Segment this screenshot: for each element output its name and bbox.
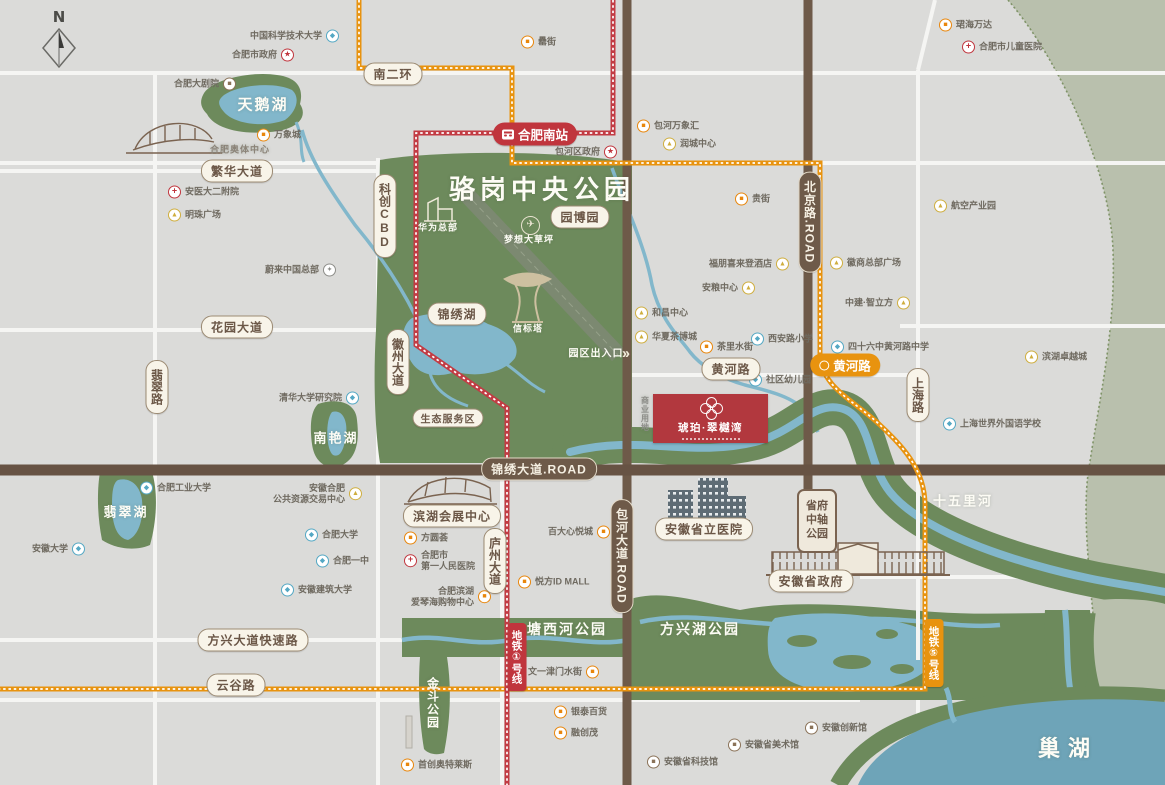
gov-icon: ★ xyxy=(604,146,617,159)
poi-label: 融创茂 xyxy=(571,728,598,739)
poi-marker: ▲徽商总部广场 xyxy=(830,257,901,270)
road-label-pill: 科创CBD xyxy=(374,174,397,258)
poi-label: 万象城 xyxy=(274,130,301,141)
culture-icon: ■ xyxy=(805,722,818,735)
poi-label: 银泰百货 xyxy=(571,707,607,718)
area-label: 十五里河 xyxy=(933,491,993,510)
poi-label: 合肥大学 xyxy=(322,530,358,541)
airplane-icon xyxy=(521,216,540,235)
metro-badge: 黄河路 xyxy=(810,354,880,377)
poi-label: 安粮中心 xyxy=(702,283,738,294)
mall-icon: ■ xyxy=(257,129,270,142)
poi-marker: 文一津门水街■ xyxy=(528,666,599,679)
poi-marker: 中建·智立方▲ xyxy=(845,297,910,310)
biz-icon: ▲ xyxy=(168,209,181,222)
road-label-pill: 徽州大道 xyxy=(387,329,410,395)
compass-n-label: N xyxy=(34,8,84,26)
poi-label: 清华大学研究院 xyxy=(279,393,342,404)
road-label-pill: 上海路 xyxy=(907,368,930,422)
school-icon: ◆ xyxy=(326,30,339,43)
poi-label: 上海世界外国语学校 xyxy=(960,419,1041,430)
poi-marker: ▲华夏茶博城 xyxy=(635,331,697,344)
poi-marker: ◆上海世界外国语学校 xyxy=(943,418,1041,431)
poi-marker: ■安徽省美术馆 xyxy=(728,739,799,752)
poi-label: 润城中心 xyxy=(680,139,716,150)
gate-chevron-icon xyxy=(622,345,628,362)
chaohu-lake xyxy=(852,699,1165,785)
mall-icon: ■ xyxy=(700,341,713,354)
poi-label: 安徽省美术馆 xyxy=(745,740,799,751)
poi-marker: ◆合肥大学 xyxy=(305,529,358,542)
mall-icon: ■ xyxy=(939,19,952,32)
poi-marker: ▲航空产业园 xyxy=(934,200,996,213)
poi-label: 合肥工业大学 xyxy=(157,483,211,494)
gov-icon: ★ xyxy=(281,49,294,62)
poi-marker: ▲滨湖卓越城 xyxy=(1025,351,1087,364)
poi-label: 和昌中心 xyxy=(652,308,688,319)
area-label: 方兴湖公园 xyxy=(660,619,740,639)
poi-marker: ■安徽省科技馆 xyxy=(647,756,718,769)
poi-label: 文一津门水街 xyxy=(528,667,582,678)
road-label-pill: 黄河路 xyxy=(701,358,760,381)
compass-rose-icon xyxy=(37,26,81,70)
school-icon: ◆ xyxy=(72,543,85,556)
project-tagline-rule xyxy=(682,438,740,440)
poi-label: 百大心悦城 xyxy=(548,527,593,538)
road-label-pill: 园博园 xyxy=(550,206,609,229)
poi-label: 罍街 xyxy=(538,37,556,48)
biz-icon: ▲ xyxy=(349,488,362,501)
river xyxy=(612,168,818,432)
poi-label: 蔚来中国总部 xyxy=(265,265,319,276)
provincial-hospital-sketch xyxy=(663,478,750,521)
school-icon: ◆ xyxy=(305,529,318,542)
poi-marker: ▲润城中心 xyxy=(663,138,716,151)
poi-marker: 蔚来中国总部✦ xyxy=(265,264,336,277)
road-label-pill: 包河大道.ROAD xyxy=(611,499,634,613)
olympic-center-sketch xyxy=(126,123,222,153)
poi-marker: ◆合肥工业大学 xyxy=(140,482,211,495)
road-label-pill: 锦绣湖 xyxy=(427,303,486,326)
mall-icon: ■ xyxy=(597,526,610,539)
poi-marker: ■方圆荟 xyxy=(404,532,448,545)
area-label: 园区出入口 xyxy=(569,345,624,360)
biz-icon: ▲ xyxy=(897,297,910,310)
biz-icon: ▲ xyxy=(934,200,947,213)
poi-marker: ■茶里水街 xyxy=(700,341,753,354)
area-label: 合肥奥体中心 xyxy=(210,143,270,156)
poi-label: 安医大二附院 xyxy=(185,187,239,198)
road-label-pill: 生态服务区 xyxy=(413,409,484,428)
biz-icon: ▲ xyxy=(635,307,648,320)
road-label-pill: 翡翠路 xyxy=(146,360,169,414)
poi-label: 合肥滨湖爱琴海购物中心 xyxy=(411,586,474,608)
nio-icon: ✦ xyxy=(323,264,336,277)
biz-icon: ▲ xyxy=(1025,351,1038,364)
poi-marker: ■融创茂 xyxy=(554,727,598,740)
compass: N xyxy=(34,8,84,74)
poi-marker: 中国科学技术大学◆ xyxy=(250,30,339,43)
poi-marker: ■悦方ID MALL xyxy=(518,576,590,589)
poi-marker: 包河区政府★ xyxy=(555,146,617,159)
poi-marker: ◆安徽建筑大学 xyxy=(281,584,352,597)
poi-label: 四十六中黄河路中学 xyxy=(848,342,929,353)
school-icon: ◆ xyxy=(831,341,844,354)
poi-label: 中建·智立方 xyxy=(845,298,893,309)
poi-label: 安徽省科技馆 xyxy=(664,757,718,768)
poi-label: 方圆荟 xyxy=(421,533,448,544)
road-label-pill: 庐州大道 xyxy=(484,528,507,594)
biz-icon: ▲ xyxy=(830,257,843,270)
poi-marker: ■银泰百货 xyxy=(554,706,607,719)
poi-label: 滨湖卓越城 xyxy=(1042,352,1087,363)
location-map: N ✦ 琥珀·翠樾湾 省府中轴公园 南二环繁华大道花园大道翡翠路徽州大道科创CB… xyxy=(0,0,1165,785)
metro-badge: 地铁⑤号线 xyxy=(925,619,944,687)
area-label: 骆岗中央公园 xyxy=(449,170,635,207)
mall-icon: ■ xyxy=(637,120,650,133)
metro-badge: 地铁①号线 xyxy=(508,623,527,691)
school-icon: ◆ xyxy=(140,482,153,495)
culture-icon: ■ xyxy=(647,756,660,769)
metro-badge: 合肥南站 xyxy=(493,123,577,146)
poi-marker: 合肥滨湖爱琴海购物中心■ xyxy=(411,586,491,608)
mall-icon: ■ xyxy=(404,532,417,545)
area-label: 南艳湖 xyxy=(313,428,358,447)
project-logo-icon: ✦ xyxy=(700,397,721,418)
biz-icon: ▲ xyxy=(663,138,676,151)
poi-marker: ■万象城 xyxy=(257,129,301,142)
poi-label: 合肥一中 xyxy=(333,556,369,567)
area-label: 信标塔 xyxy=(513,322,543,335)
mall-icon: ■ xyxy=(401,759,414,772)
poi-label: 珺海万达 xyxy=(956,20,992,31)
road-label-pill: 花园大道 xyxy=(201,316,273,339)
poi-label: 华夏茶博城 xyxy=(652,332,697,343)
poi-marker: +合肥市第一人民医院 xyxy=(404,550,475,572)
poi-marker: 安徽合肥公共资源交易中心▲ xyxy=(273,483,362,505)
poi-marker: ◆西安路小学 xyxy=(751,333,813,346)
road-label-pill: 安徽省政府 xyxy=(768,570,853,593)
poi-marker: 安徽大学◆ xyxy=(32,543,85,556)
hosp-icon: + xyxy=(962,41,975,54)
poi-label: 安徽合肥公共资源交易中心 xyxy=(273,483,345,505)
biz-icon: ▲ xyxy=(635,331,648,344)
mall-icon: ■ xyxy=(521,36,534,49)
culture-icon: ■ xyxy=(728,739,741,752)
theater-icon: ■ xyxy=(223,78,236,91)
poi-label: 包河区政府 xyxy=(555,147,600,158)
mall-icon: ■ xyxy=(586,666,599,679)
poi-label: 合肥市儿童医院 xyxy=(979,42,1042,53)
poi-marker: 百大心悦城■ xyxy=(548,526,610,539)
poi-label: 包河万象汇 xyxy=(654,121,699,132)
area-label: 塘西河公园 xyxy=(527,619,607,639)
poi-marker: +安医大二附院 xyxy=(168,186,239,199)
school-icon: ◆ xyxy=(943,418,956,431)
fangxing-lake xyxy=(768,613,934,691)
mall-icon: ■ xyxy=(735,193,748,206)
road-label-pill: 滨湖会展中心 xyxy=(403,505,501,528)
poi-marker: ▲和昌中心 xyxy=(635,307,688,320)
mall-icon: ■ xyxy=(554,706,567,719)
poi-label: 安徽创新馆 xyxy=(822,723,867,734)
poi-label: 明珠广场 xyxy=(185,210,221,221)
hosp-icon: + xyxy=(404,555,417,568)
poi-label: 福朋喜来登酒店 xyxy=(709,259,772,270)
poi-marker: 清华大学研究院◆ xyxy=(279,392,359,405)
gov-axis-park-label: 省府中轴公园 xyxy=(804,500,830,541)
poi-label: 航空产业园 xyxy=(951,201,996,212)
poi-label: 合肥大剧院 xyxy=(174,79,219,90)
poi-marker: +合肥市儿童医院 xyxy=(962,41,1042,54)
road-label-pill: 繁华大道 xyxy=(201,160,273,183)
road-label-pill: 北京路.ROAD xyxy=(799,172,822,273)
poi-marker: 安粮中心▲ xyxy=(702,282,755,295)
poi-label: 首创奥特莱斯 xyxy=(418,760,472,771)
biz-icon: ▲ xyxy=(742,282,755,295)
poi-label: 合肥市第一人民医院 xyxy=(421,550,475,572)
project-name: 琥珀·翠樾湾 xyxy=(678,420,743,435)
poi-marker: 合肥市政府★ xyxy=(232,49,294,62)
poi-marker: ▲明珠广场 xyxy=(168,209,221,222)
area-label: 商业用地 xyxy=(640,396,651,432)
area-label: 天鹅湖 xyxy=(237,94,288,115)
metro-icon xyxy=(819,360,829,370)
gov-axis-park-badge: 省府中轴公园 xyxy=(797,489,837,553)
poi-marker: ◆合肥一中 xyxy=(316,555,369,568)
poi-label: 社区幼儿园 xyxy=(766,375,811,386)
poi-marker: ■安徽创新馆 xyxy=(805,722,867,735)
school-icon: ◆ xyxy=(346,392,359,405)
hosp-icon: + xyxy=(168,186,181,199)
road-label-pill: 锦绣大道.ROAD xyxy=(481,458,597,481)
road-label-pill: 安徽省立医院 xyxy=(655,518,753,541)
mall-icon: ■ xyxy=(554,727,567,740)
poi-label: 中国科学技术大学 xyxy=(250,31,322,42)
poi-marker: ■罍街 xyxy=(521,36,556,49)
poi-label: 安徽建筑大学 xyxy=(298,585,352,596)
poi-marker: ◆四十六中黄河路中学 xyxy=(831,341,929,354)
viewing-tower-sketch xyxy=(406,716,412,748)
area-label: 巢湖 xyxy=(1038,731,1098,763)
poi-label: 悦方ID MALL xyxy=(535,577,590,588)
area-label: 华为总部 xyxy=(418,221,458,234)
poi-marker: 合肥大剧院■ xyxy=(174,78,236,91)
road-label-pill: 方兴大道快速路 xyxy=(197,629,308,652)
poi-label: 安徽大学 xyxy=(32,544,68,555)
poi-label: 合肥市政府 xyxy=(232,50,277,61)
poi-marker: ■首创奥特莱斯 xyxy=(401,759,472,772)
area-label: 翡翠湖 xyxy=(103,502,148,521)
train-icon xyxy=(502,129,514,139)
school-icon: ◆ xyxy=(281,584,294,597)
poi-label: 徽商总部广场 xyxy=(847,258,901,269)
project-marker: ✦ 琥珀·翠樾湾 xyxy=(653,394,768,443)
poi-label: 茶里水街 xyxy=(717,342,753,353)
poi-marker: ■贵街 xyxy=(735,193,770,206)
poi-marker: 福朋喜来登酒店▲ xyxy=(709,258,789,271)
mall-icon: ■ xyxy=(518,576,531,589)
area-label: 金斗公园 xyxy=(425,677,442,729)
poi-label: 贵街 xyxy=(752,194,770,205)
convention-center-sketch xyxy=(404,477,497,504)
biz-icon: ▲ xyxy=(776,258,789,271)
road-label-pill: 南二环 xyxy=(363,63,422,86)
poi-marker: ■包河万象汇 xyxy=(637,120,699,133)
poi-label: 西安路小学 xyxy=(768,334,813,345)
road-label-pill: 云谷路 xyxy=(206,674,265,697)
poi-marker: ■珺海万达 xyxy=(939,19,992,32)
school-icon: ◆ xyxy=(316,555,329,568)
